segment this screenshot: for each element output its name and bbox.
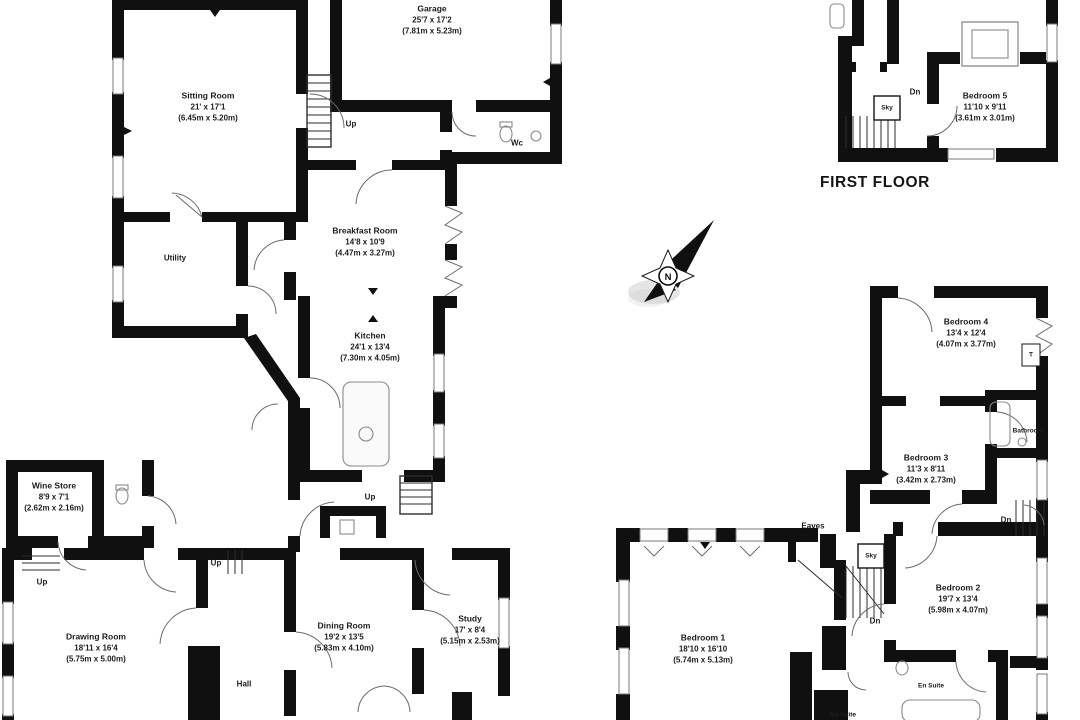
floorplan-linework: N [0, 0, 1080, 720]
room-label-wine-store: Wine Store 8'9 x 7'1 (2.62m x 2.16m) [24, 481, 84, 514]
room-dims-imperial: 25'7 x 17'2 [402, 15, 462, 26]
room-name: Study [440, 614, 500, 625]
up-label-2: Up [365, 493, 376, 502]
first-floor-title: FIRST FLOOR [820, 174, 930, 192]
room-label-dining-room: Dining Room 19'2 x 13'5 (5.83m x 4.10m) [314, 621, 374, 654]
room-dims-metric: (4.47m x 3.27m) [332, 248, 397, 259]
room-label-garage: Garage 25'7 x 17'2 (7.81m x 5.23m) [402, 4, 462, 37]
room-label-breakfast-room: Breakfast Room 14'8 x 10'9 (4.47m x 3.27… [332, 226, 397, 259]
room-dims-metric: (7.81m x 5.23m) [402, 26, 462, 37]
room-dims-imperial: 24'1 x 13'4 [340, 342, 400, 353]
room-label-bedroom-1: Bedroom 1 18'10 x 16'10 (5.74m x 5.13m) [673, 633, 733, 666]
sky-label-2: Sky [865, 553, 877, 560]
room-name: Garage [402, 4, 462, 15]
room-dims-imperial: 19'2 x 13'5 [314, 632, 374, 643]
room-dims-imperial: 11'3 x 8'11 [896, 464, 956, 475]
room-dims-metric: (6.45m x 5.20m) [178, 113, 238, 124]
room-dims-imperial: 21' x 17'1 [178, 102, 238, 113]
room-dims-imperial: 8'9 x 7'1 [24, 492, 84, 503]
toilet-label: T [1029, 352, 1033, 359]
room-dims-metric: (7.30m x 4.05m) [340, 353, 400, 364]
room-label-sitting-room: Sitting Room 21' x 17'1 (6.45m x 5.20m) [178, 91, 238, 124]
ground-floor-walls [2, 0, 562, 720]
room-dims-metric: (4.07m x 3.77m) [936, 339, 996, 350]
window-chevrons [445, 206, 1052, 556]
room-dims-metric: (5.74m x 5.13m) [673, 655, 733, 666]
room-name: Bedroom 1 [673, 633, 733, 644]
room-name: Bedroom 5 [955, 91, 1015, 102]
eaves-label: Eaves [801, 522, 824, 531]
room-name: Breakfast Room [332, 226, 397, 237]
room-dims-imperial: 17' x 8'4 [440, 625, 500, 636]
up-label-1: Up [346, 120, 357, 129]
room-dims-imperial: 11'10 x 9'11 [955, 102, 1015, 113]
en-suite-label-2: En Suite [830, 712, 856, 719]
room-label-study: Study 17' x 8'4 (5.15m x 2.53m) [440, 614, 500, 647]
up-label-4: Up [37, 578, 48, 587]
sky-label-1: Sky [881, 105, 893, 112]
room-name: Drawing Room [66, 632, 126, 643]
dn-label-2: Dn [1001, 516, 1012, 525]
room-dims-metric: (3.61m x 3.01m) [955, 113, 1015, 124]
room-name: Bedroom 3 [896, 453, 956, 464]
room-label-bedroom-2: Bedroom 2 19'7 x 13'4 (5.98m x 4.07m) [928, 583, 988, 616]
room-dims-imperial: 18'10 x 16'10 [673, 644, 733, 655]
wc-label: Wc [511, 139, 523, 148]
room-name: Kitchen [340, 331, 400, 342]
room-dims-metric: (5.98m x 4.07m) [928, 605, 988, 616]
floorplan-canvas: N Sitting Room 21' x 17'1 (6.45m x 5.20m… [0, 0, 1080, 720]
windows [3, 24, 1057, 716]
bathroom-label: Bathroom [1013, 428, 1044, 435]
compass-rose: N [628, 220, 714, 307]
dn-label-1: Dn [910, 88, 921, 97]
room-name: Sitting Room [178, 91, 238, 102]
hall-label: Hall [237, 680, 252, 689]
room-dims-metric: (5.83m x 4.10m) [314, 643, 374, 654]
dn-label-3: Dn [870, 617, 881, 626]
room-dims-metric: (5.75m x 5.00m) [66, 654, 126, 665]
room-label-bedroom-3: Bedroom 3 11'3 x 8'11 (3.42m x 2.73m) [896, 453, 956, 486]
room-dims-imperial: 14'8 x 10'9 [332, 237, 397, 248]
room-name: Dining Room [314, 621, 374, 632]
room-dims-imperial: 18'11 x 16'4 [66, 643, 126, 654]
room-dims-metric: (2.62m x 2.16m) [24, 503, 84, 514]
room-name: Bedroom 4 [936, 317, 996, 328]
room-label-bedroom-4: Bedroom 4 13'4 x 12'4 (4.07m x 3.77m) [936, 317, 996, 350]
room-dims-metric: (3.42m x 2.73m) [896, 475, 956, 486]
room-label-bedroom-5: Bedroom 5 11'10 x 9'11 (3.61m x 3.01m) [955, 91, 1015, 124]
room-dims-imperial: 19'7 x 13'4 [928, 594, 988, 605]
room-dims-imperial: 13'4 x 12'4 [936, 328, 996, 339]
room-name: Wine Store [24, 481, 84, 492]
compass-north-letter: N [665, 272, 672, 283]
room-dims-metric: (5.15m x 2.53m) [440, 636, 500, 647]
en-suite-label-1: En Suite [918, 683, 944, 690]
room-name: Bedroom 2 [928, 583, 988, 594]
room-label-kitchen: Kitchen 24'1 x 13'4 (7.30m x 4.05m) [340, 331, 400, 364]
utility-label: Utility [164, 254, 186, 263]
up-label-3: Up [211, 559, 222, 568]
room-label-drawing-room: Drawing Room 18'11 x 16'4 (5.75m x 5.00m… [66, 632, 126, 665]
